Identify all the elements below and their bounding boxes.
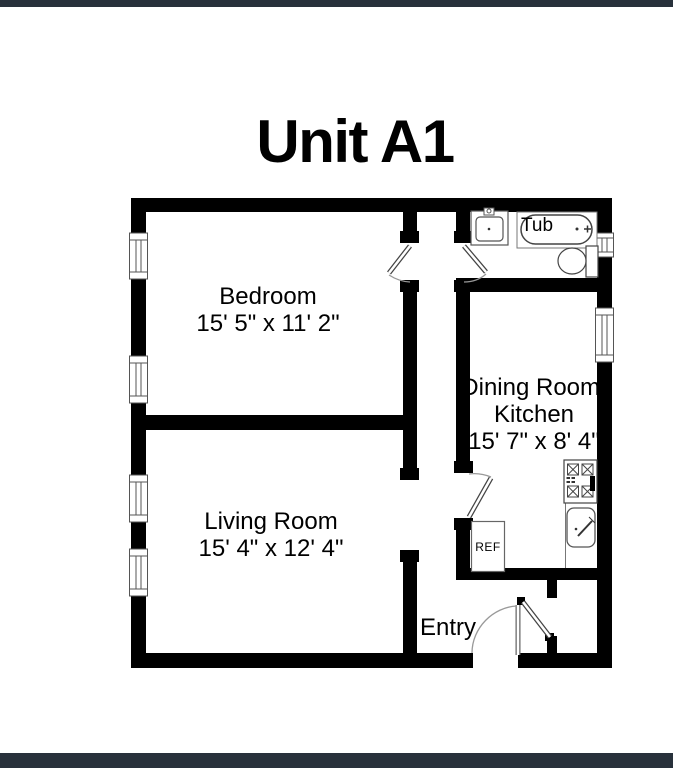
- entry-closet-door: [523, 602, 550, 637]
- wall-segment: [597, 198, 612, 233]
- door-jamb: [454, 231, 473, 243]
- wall-segment: [131, 415, 417, 430]
- door-jamb: [400, 468, 419, 480]
- dining-kitchen-name-line1: Dining Room/: [461, 374, 606, 401]
- bedroom-dimensions: 15' 5" x 11' 2": [196, 310, 339, 337]
- wall-segment: [456, 278, 612, 292]
- bedroom-door: [389, 246, 410, 282]
- window-living-left-1: [130, 475, 148, 522]
- living-room-name: Living Room: [199, 508, 344, 535]
- window-bedroom-left-1: [130, 233, 148, 279]
- bedroom-name: Bedroom: [196, 283, 339, 310]
- wall-segment: [131, 279, 146, 356]
- wall-segment: [403, 280, 417, 480]
- bathroom-door: [464, 246, 486, 282]
- wall-segment: [131, 653, 473, 668]
- dining-kitchen-label: Dining Room/ Kitchen 15' 7" x 8' 4": [461, 374, 606, 455]
- floorplan-image: Unit A1 Bedroom 15' 5" x 11' 2" Living R…: [0, 0, 673, 768]
- dining-kitchen-dimensions: 15' 7" x 8' 4": [461, 428, 606, 455]
- wall-segment: [547, 580, 557, 598]
- stove: [564, 460, 597, 503]
- refrigerator-label: REF: [475, 541, 501, 554]
- door-jamb: [454, 461, 473, 473]
- wall-segment: [131, 522, 146, 549]
- window-dining-right: [596, 308, 614, 362]
- toilet: [558, 246, 598, 277]
- wall-segment: [131, 403, 146, 475]
- dining-kitchen-name-line2: Kitchen: [461, 401, 606, 428]
- entry-door: [472, 605, 518, 655]
- tub-label: Tub: [521, 215, 553, 236]
- wall-segment: [131, 198, 612, 212]
- bathroom-sink: [471, 208, 508, 245]
- living-room-label: Living Room 15' 4" x 12' 4": [199, 508, 344, 562]
- door-jamb: [454, 518, 473, 530]
- living-room-dimensions: 15' 4" x 12' 4": [199, 535, 344, 562]
- bedroom-label: Bedroom 15' 5" x 11' 2": [196, 283, 339, 337]
- entry-label: Entry: [420, 614, 476, 641]
- wall-segment: [518, 653, 612, 668]
- door-jamb: [400, 231, 419, 243]
- window-living-left-2: [130, 549, 148, 596]
- wall-segment: [131, 198, 146, 233]
- wall-segment: [403, 550, 417, 668]
- window-bedroom-left-2: [130, 356, 148, 403]
- kitchen-sink: [567, 508, 595, 547]
- unit-title: Unit A1: [256, 112, 453, 172]
- dining-room-door: [469, 474, 491, 517]
- door-jamb: [400, 550, 419, 562]
